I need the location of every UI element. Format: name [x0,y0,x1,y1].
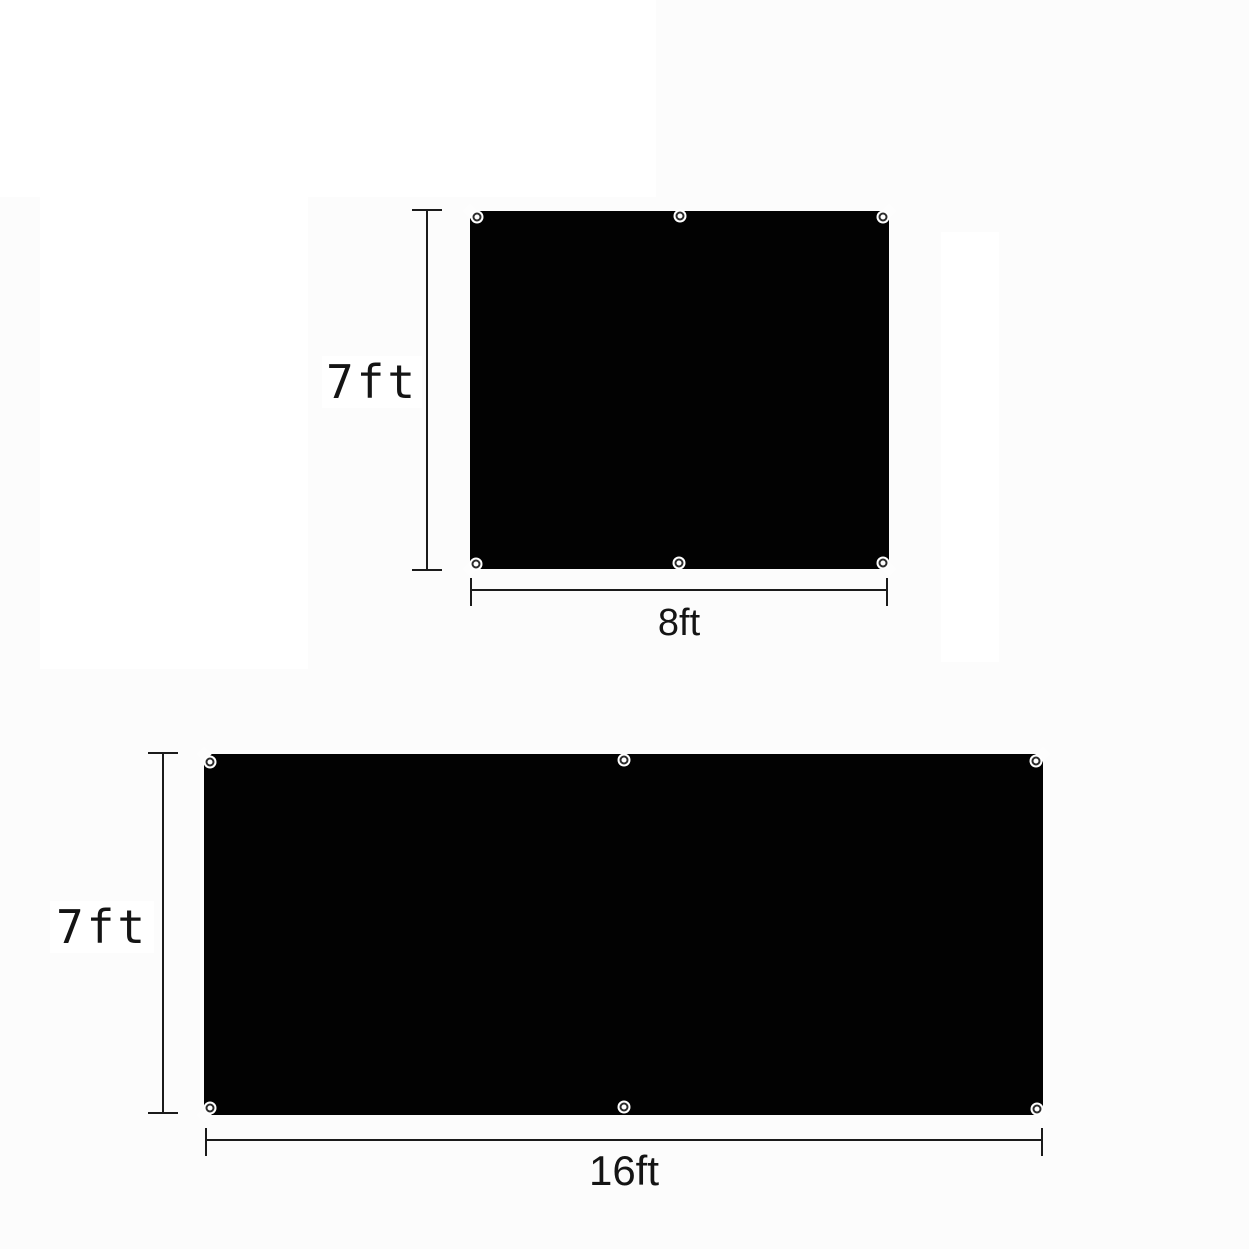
width-label: 16ft [554,1149,694,1193]
dimension-end-cap [148,1112,178,1114]
height-dimension-line [162,753,164,1113]
dimension-end-tick [1041,1128,1043,1156]
width-dimension-line [470,589,888,591]
dimension-end-tick [470,578,472,606]
dimension-end-tick [205,1128,207,1156]
height-label: 7ft [50,901,154,953]
background-patch [0,0,656,197]
height-label: 7ft [322,356,422,408]
dimension-end-tick [886,578,888,606]
grommet-icon [879,213,888,222]
width-label: 8ft [609,604,749,644]
grommet-icon [676,212,685,221]
grommet-icon [620,1103,629,1112]
height-dimension-line [426,210,428,570]
background-patch [941,232,999,662]
product-dimension-diagram: 7ft 8ft 7ft 16ft [0,0,1249,1249]
tarp-panel-8ft [470,211,889,569]
width-dimension-line [205,1139,1043,1141]
grommet-icon [879,559,888,568]
dimension-end-cap [412,209,442,211]
background-patch [40,197,308,669]
grommet-icon [206,758,215,767]
dimension-end-cap [148,752,178,754]
grommet-icon [620,756,629,765]
grommet-icon [473,213,482,222]
grommet-icon [1032,757,1041,766]
tarp-panel-16ft [204,754,1043,1115]
grommet-icon [675,559,684,568]
grommet-icon [1033,1105,1042,1114]
dimension-end-cap [412,569,442,571]
grommet-icon [206,1104,215,1113]
grommet-icon [472,560,481,569]
